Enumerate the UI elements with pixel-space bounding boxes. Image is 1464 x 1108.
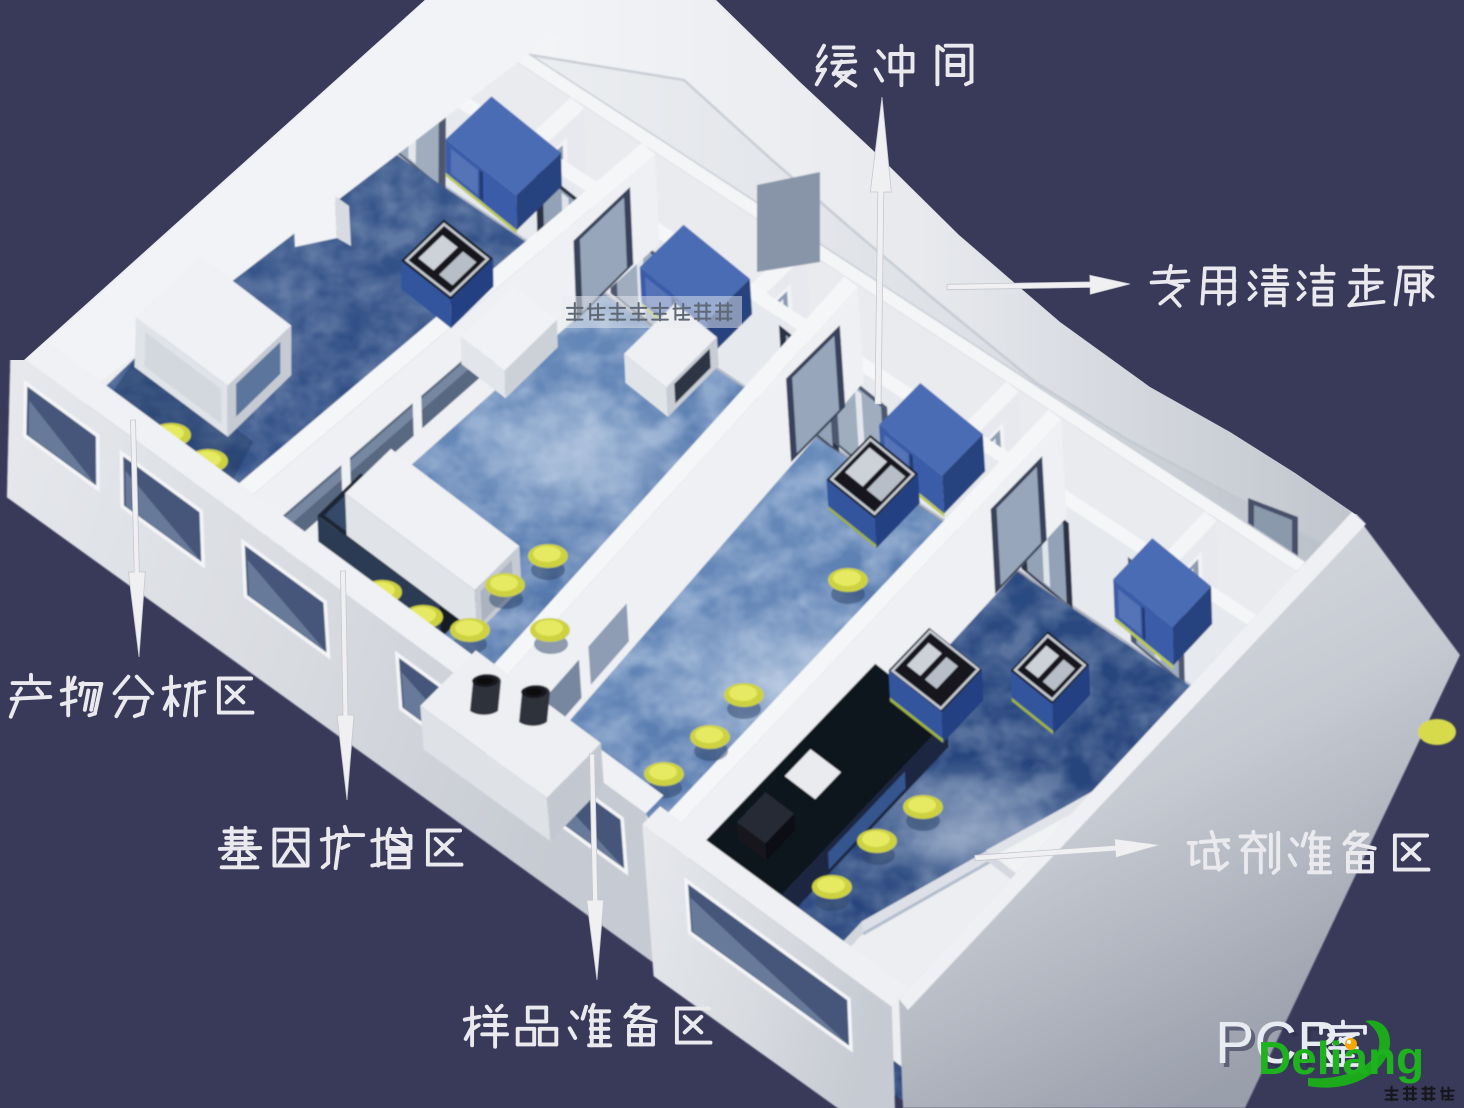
svg-text:Deliang: Deliang <box>1258 1032 1424 1084</box>
